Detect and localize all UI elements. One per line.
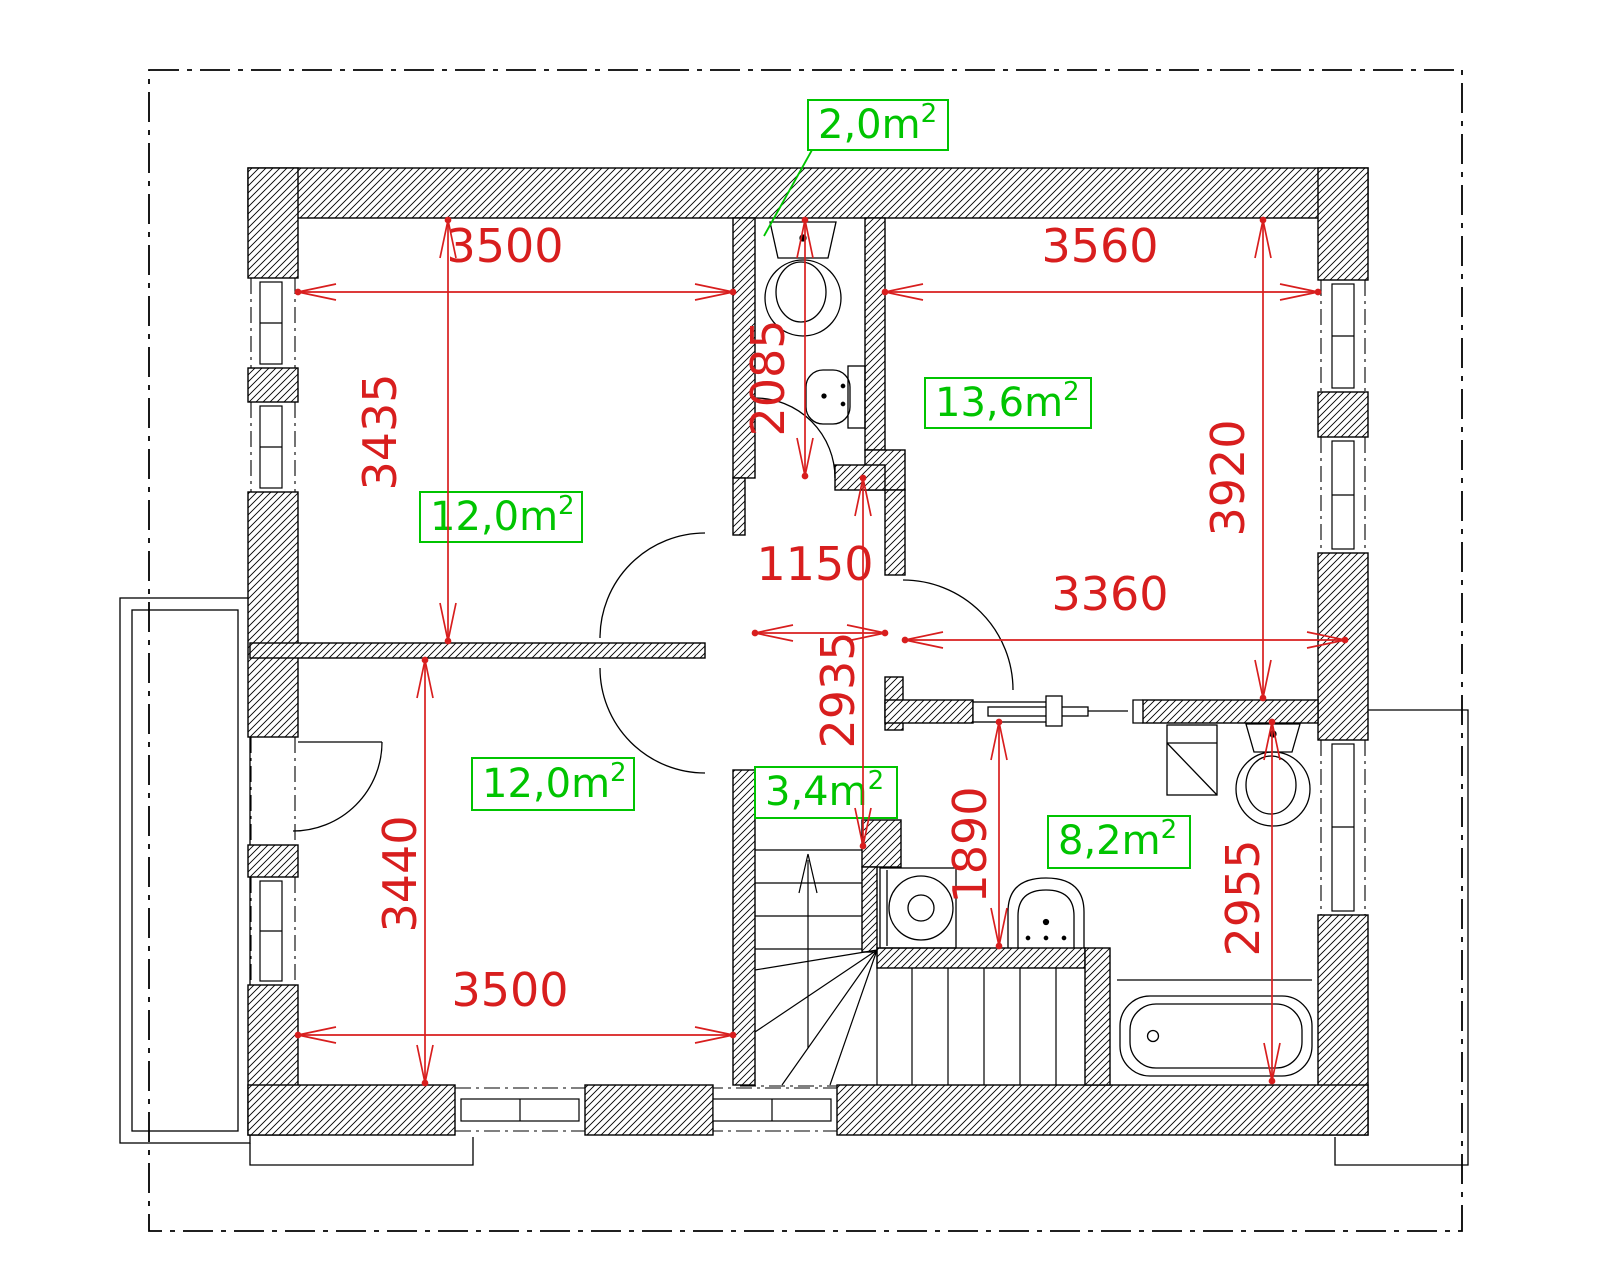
svg-text:1890: 1890	[943, 786, 997, 903]
door-arc-top-left-room	[600, 533, 705, 638]
dimension-top-left-room-width: 3500	[296, 219, 736, 300]
balcony	[120, 598, 250, 1143]
dimension-top-left-room-depth: 3435	[353, 218, 456, 644]
svg-text:2955: 2955	[1216, 839, 1270, 956]
svg-text:12,0m2: 12,0m2	[482, 758, 627, 807]
wall-stair-east	[862, 867, 877, 952]
dimension-bottom-left-room-depth: 3440	[373, 658, 433, 1086]
dimension-bathroom-width: 3360	[903, 567, 1348, 648]
svg-text:3360: 3360	[1051, 567, 1168, 621]
svg-text:12,0m2: 12,0m2	[430, 491, 575, 540]
window-icon	[1332, 284, 1354, 388]
svg-text:3440: 3440	[373, 815, 427, 932]
floor-plan-drawing: 2,0m2 12,0m2 13,6m2 12,0m2 3,4m2 8,2m2	[0, 0, 1600, 1280]
svg-text:2085: 2085	[741, 319, 795, 436]
window-icon	[260, 282, 282, 364]
wall-tub-divider	[1085, 948, 1110, 1085]
window-icon	[1332, 441, 1354, 549]
dimension-top-right-room-depth: 3920	[1201, 218, 1271, 701]
wall-exterior-right	[1318, 168, 1368, 280]
window-icon	[1332, 744, 1354, 911]
svg-text:3,4m2: 3,4m2	[765, 766, 884, 815]
wall-stair-south	[877, 948, 1085, 968]
wall-stair-west	[733, 770, 755, 1085]
area-label-bathroom: 8,2m2	[1048, 815, 1190, 868]
wall-bathroom-north-left	[885, 700, 973, 723]
svg-text:13,6m2: 13,6m2	[935, 377, 1080, 426]
area-label-stair-landing: 3,4m2	[755, 766, 897, 818]
svg-text:3560: 3560	[1041, 219, 1158, 273]
window-icon	[713, 1099, 831, 1121]
dimension-hall-width: 1150	[753, 537, 888, 641]
toilet-icon	[765, 222, 841, 336]
window-icon	[260, 881, 282, 981]
wall-exterior-top	[248, 168, 1368, 218]
stair-direction-arrow-icon	[799, 854, 817, 1048]
area-label-bedroom-top-left: 12,0m2	[420, 491, 582, 542]
svg-text:1150: 1150	[756, 537, 873, 591]
toilet-icon	[1236, 724, 1310, 826]
window-icon	[461, 1099, 579, 1121]
entry-step	[250, 1137, 473, 1165]
svg-text:2935: 2935	[811, 631, 865, 748]
svg-text:2,0m2: 2,0m2	[818, 99, 937, 148]
wall-exterior-bottom	[248, 1085, 455, 1135]
area-label-bedroom-bottom-left: 12,0m2	[472, 758, 634, 810]
door-arc-top-right-room	[903, 580, 1013, 690]
shower-cabinet-icon	[1167, 725, 1217, 795]
wall-bathroom-north-right	[1143, 700, 1318, 723]
svg-text:8,2m2: 8,2m2	[1058, 815, 1177, 864]
balcony-door-icon	[293, 742, 382, 831]
window-icon	[260, 406, 282, 488]
svg-text:3500: 3500	[446, 219, 563, 273]
floor-plan-page: 2,0m2 12,0m2 13,6m2 12,0m2 3,4m2 8,2m2	[0, 0, 1600, 1280]
svg-text:3500: 3500	[451, 963, 568, 1017]
svg-text:3920: 3920	[1201, 419, 1255, 536]
wash-basin-icon	[806, 366, 865, 428]
doors	[293, 398, 1143, 831]
wall-bedroom-partition	[250, 643, 705, 658]
dimension-top-right-room-width: 3560	[883, 219, 1321, 300]
area-label-room-top-right: 13,6m2	[925, 377, 1091, 428]
wall-exterior-left	[248, 168, 298, 278]
area-label-wc: 2,0m2	[808, 99, 948, 150]
dimension-bottom-left-room-width: 3500	[296, 963, 736, 1043]
svg-text:3435: 3435	[353, 373, 407, 490]
wall-wc-right	[865, 218, 885, 450]
bathtub-icon	[1117, 980, 1312, 1076]
wall-hall-east	[885, 490, 905, 575]
wash-basin-icon	[1008, 878, 1084, 948]
